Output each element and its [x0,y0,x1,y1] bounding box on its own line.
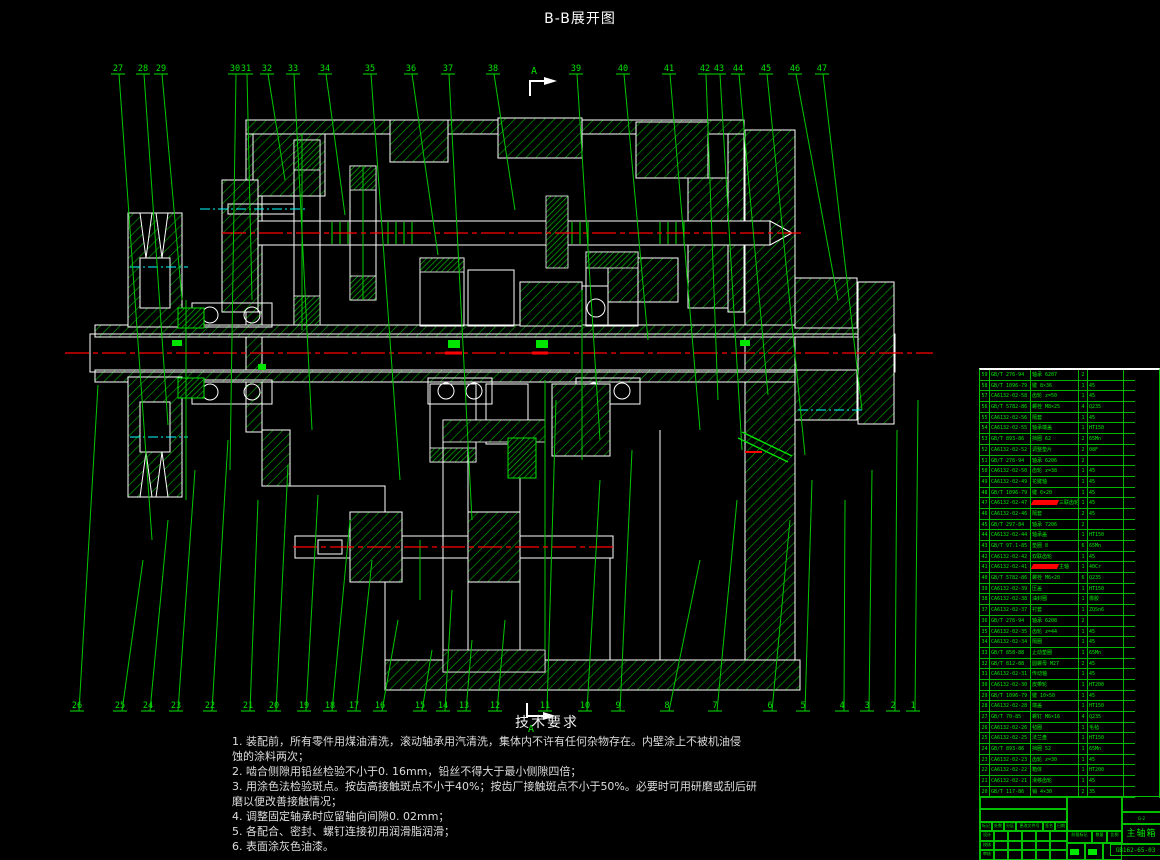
bom-cell: 齿轮 z=30 [1031,755,1079,766]
bom-cell: 65Mn [1088,434,1124,445]
bom-cell: 4 [1079,402,1088,413]
callout-number-26: 26 [72,701,82,711]
bom-cell: CA6132-02-39 [990,584,1031,595]
bom-cell: CA6132-02-22 [990,765,1031,776]
callout-number-41: 41 [664,64,674,74]
bom-cell: 57 [980,391,990,402]
red-highlight-bar [1031,500,1059,505]
bom-cell: CA6132-02-56 [990,413,1031,424]
change-record-label: 更改文件号 [1016,822,1043,831]
bom-cell: 08F [1088,445,1124,456]
bom-cell: 48 [980,488,990,499]
bom-cell: GB/T 70-85 [990,712,1031,723]
bom-cell: 1 [1079,594,1088,605]
bom-cell: 2 [1079,456,1088,467]
bom-cell: 花键轴 [1031,477,1079,488]
bom-cell: 6 [1079,573,1088,584]
bom-cell [1124,669,1135,680]
bom-cell: CA6132-02-37 [990,605,1031,616]
callout-number-37: 37 [443,64,453,74]
bom-cell: GB/T 1096-79 [990,381,1031,392]
bom-cell: 38 [980,594,990,605]
bom-cell: 45 [1088,413,1124,424]
bom-row-41: 41CA6132-02-41主轴140Cr [980,562,1159,573]
callout-number-21: 21 [243,701,253,711]
bom-cell [1124,691,1135,702]
callout-number-36: 36 [406,64,416,74]
bom-cell [1124,477,1135,488]
bom-cell: 1 [1079,701,1088,712]
bom-cell: 45 [1088,776,1124,787]
bom-cell: 毡圈 [1031,723,1079,734]
bom-cell: 1 [1079,648,1088,659]
tech-requirement-line-1: 1. 装配前，所有零件用煤油清洗，滚动轴承用汽清洗，集体内不许有任何杂物存在。内… [232,734,752,749]
bom-row-50: 50CA6132-02-50齿轮 z=38145 [980,466,1159,477]
bom-cell: 30 [980,680,990,691]
bom-cell: GB/T 812-88 [990,659,1031,670]
bom-cell: 1 [1079,391,1088,402]
bom-cell: 21 [980,776,990,787]
callout-number-32: 32 [262,64,272,74]
bom-cell [1124,680,1135,691]
bom-cell: 45 [1088,669,1124,680]
bom-cell: GB/T 893-86 [990,434,1031,445]
bom-cell: 36 [980,616,990,627]
bom-cell [1124,605,1135,616]
bom-cell [1124,659,1135,670]
callout-number-34: 34 [320,64,330,74]
bom-cell: 1 [1079,530,1088,541]
bom-row-32: 32GB/T 812-88圆螺母 M27245 [980,659,1159,670]
product-name: 主轴箱 [1122,824,1160,844]
bom-cell: Q235 [1088,573,1124,584]
bom-cell: 51 [980,456,990,467]
bom-cell: 1 [1079,498,1088,509]
bom-cell [1124,541,1135,552]
bom-cell: CA6132-02-44 [990,530,1031,541]
bom-cell: 39 [980,584,990,595]
bom-cell [1124,381,1135,392]
bom-cell: 35 [980,627,990,638]
callout-number-28: 28 [138,64,148,74]
red-highlight-bar [1031,564,1059,569]
bom-row-21: 21CA6132-02-21滑移齿轮145 [980,776,1159,787]
title-block: 标记处数分区更改文件号签名日期 设计校核审核 阶段标记数量比例 G‑2 主轴箱 … [979,796,1160,860]
sign-cell [1022,841,1036,851]
bom-row-36: 36GB/T 276-94轴承 62082 [980,616,1159,627]
bom-cell: 45 [1088,637,1124,648]
bom-cell: 44 [980,530,990,541]
bom-cell: 40 [980,573,990,584]
technical-requirements: 技术要求 1. 装配前，所有零件用煤油清洗，滚动轴承用汽清洗，集体内不许有任何杂… [232,712,752,854]
section-marker-a-top: A [530,66,557,96]
bom-cell: 止动垫圈 [1031,648,1079,659]
bom-cell: 1 [1079,423,1088,434]
bom-cell: 1 [1079,765,1088,776]
bom-cell: 1 [1079,477,1088,488]
tech-requirements-heading: 技术要求 [412,712,682,732]
sign-cell: 校核 [980,841,994,851]
bom-cell: 1 [1079,637,1088,648]
bom-cell: 隔圈 [1031,637,1079,648]
change-record-label: 处数 [992,822,1004,831]
bom-cell: 圆螺母 M27 [1031,659,1079,670]
bom-cell: 1 [1079,381,1088,392]
bom-cell: 34 [980,637,990,648]
bom-cell: CA6132-02-38 [990,594,1031,605]
bom-cell: 65Mn [1088,744,1124,755]
bom-cell: 轴承 6207 [1031,370,1079,381]
bom-cell: 4 [1079,712,1088,723]
callout-number-39: 39 [571,64,581,74]
bom-cell: 2 [1079,520,1088,531]
callout-number-10: 10 [580,701,590,711]
bom-row-31: 31CA6132-02-31传动轴145 [980,669,1159,680]
bom-row-44: 44CA6132-02-44轴承盖1HT150 [980,530,1159,541]
bom-cell [1124,391,1135,402]
bom-cell [1124,648,1135,659]
bom-cell: 45 [1088,509,1124,520]
bom-cell: GB/T 5782-86 [990,573,1031,584]
callout-number-29: 29 [156,64,166,74]
bom-cell [1124,584,1135,595]
bom-cell: 42 [980,552,990,563]
bom-cell: CA6132-02-50 [990,466,1031,477]
bom-cell [1124,627,1135,638]
view-title: B-B展开图 [0,8,1160,28]
bom-cell: 33 [980,648,990,659]
bom-cell: 45 [1088,498,1124,509]
callout-number-23: 23 [171,701,181,711]
bom-row-53: 53GB/T 893-86挡圈 62265Mn [980,434,1159,445]
bom-cell: 45 [1088,755,1124,766]
callout-number-45: 45 [761,64,771,74]
bom-cell: 压盖 [1031,584,1079,595]
sign-cell [1050,841,1067,851]
sign-cell [1008,841,1022,851]
sign-cell [1036,850,1050,860]
bom-cell: 1 [1079,488,1088,499]
bom-cell: 轴承 6206 [1031,456,1079,467]
bom-cell [1088,520,1124,531]
bom-row-26: 26CA6132-02-26毡圈1毛毡 [980,723,1159,734]
bom-cell [1124,733,1135,744]
bom-row-42: 42CA6132-02-42双联齿轮145 [980,552,1159,563]
bom-row-59: 59GB/T 276-94轴承 62072 [980,370,1159,381]
bom-cell: Q235 [1088,712,1124,723]
callout-number-40: 40 [618,64,628,74]
bom-cell [1124,552,1135,563]
bom-cell [1088,370,1124,381]
bom-row-43: 43GB/T 97.1-85垫圈 8665Mn [980,541,1159,552]
bom-row-47: 47CA6132-02-47三联齿轮145 [980,498,1159,509]
bom-cell: 螺钉 M6×16 [1031,712,1079,723]
bom-cell: GB/T 893-86 [990,744,1031,755]
bom-row-40: 40GB/T 5782-86螺栓 M6×206Q235 [980,573,1159,584]
bom-cell: 轴承盖 [1031,530,1079,541]
change-record-label: 标记 [980,822,992,831]
bom-cell: 2 [1079,434,1088,445]
bom-cell: 1 [1079,627,1088,638]
bom-cell: 58 [980,381,990,392]
callout-number-19: 19 [299,701,309,711]
sign-cell [1050,850,1067,860]
bom-cell: 隔套 [1031,509,1079,520]
bom-row-52: 52CA6132-02-52调整垫片208F [980,445,1159,456]
bom-row-58: 58GB/T 1096-79键 8×36145 [980,381,1159,392]
bom-cell [1124,466,1135,477]
bom-cell: 1 [1079,466,1088,477]
bom-cell: 油封圈 [1031,594,1079,605]
bom-cell: 45 [1088,477,1124,488]
bom-cell: CA6132-02-35 [990,627,1031,638]
bom-cell: 53 [980,434,990,445]
bom-cell [1124,712,1135,723]
bom-row-45: 45GB/T 297-84轴承 72062 [980,520,1159,531]
bom-cell [1124,530,1135,541]
sign-cell [994,850,1008,860]
bom-cell: 1 [1079,723,1088,734]
bom-cell: 轴承端盖 [1031,423,1079,434]
sign-cell [994,841,1008,851]
callout-number-31: 31 [241,64,251,74]
callout-number-43: 43 [714,64,724,74]
parts-list-table[interactable]: 59GB/T 276-94轴承 6207258GB/T 1096-79键 8×3… [979,368,1160,798]
bom-cell: 2 [1079,616,1088,627]
callout-number-18: 18 [325,701,335,711]
bom-cell: 调整垫片 [1031,445,1079,456]
bom-row-30: 30CA6132-02-30皮带轮1HT200 [980,680,1159,691]
change-record-label: 签名 [1043,822,1055,831]
bom-cell: CA6132-02-23 [990,755,1031,766]
bom-row-55: 55CA6132-02-56隔套145 [980,413,1159,424]
stage-label: 比例 [1107,831,1122,843]
bom-cell: HT150 [1088,733,1124,744]
bom-cell [1124,370,1135,381]
callout-number-14: 14 [438,701,448,711]
bom-cell: 1 [1079,733,1088,744]
bom-cell: 45 [1088,659,1124,670]
sign-cell [1008,831,1022,841]
bom-cell: 衬套 [1031,605,1079,616]
bom-cell: 挡圈 62 [1031,434,1079,445]
bom-cell: 1 [1079,584,1088,595]
sign-cell [1050,831,1067,841]
bom-cell: 1 [1079,413,1088,424]
bom-row-25: 25CA6132-02-25法兰盘1HT150 [980,733,1159,744]
bom-cell: CA6132-02-26 [990,723,1031,734]
bom-cell: 29 [980,691,990,702]
bom-cell [1124,701,1135,712]
bom-cell: 27 [980,712,990,723]
bom-cell [1124,509,1135,520]
bom-cell: GB/T 1096-79 [990,691,1031,702]
callout-number-27: 27 [113,64,123,74]
bom-cell: GB/T 276-94 [990,370,1031,381]
bom-cell [1124,723,1135,734]
bom-cell: 齿轮 z=38 [1031,466,1079,477]
bom-cell: 43 [980,541,990,552]
bom-cell: CA6132-02-47 [990,498,1031,509]
bom-cell [1124,776,1135,787]
bom-cell: 45 [1088,488,1124,499]
bom-cell: 键 6×20 [1031,488,1079,499]
bom-cell: 37 [980,605,990,616]
bom-cell: 端盖 [1031,701,1079,712]
bom-row-27: 27GB/T 70-85螺钉 M6×164Q235 [980,712,1159,723]
svg-text:A: A [531,66,537,77]
bom-row-57: 57CA6132-02-58齿轮 z=50145 [980,391,1159,402]
bom-cell [1124,562,1135,573]
bom-cell: 54 [980,423,990,434]
sign-cell [1022,850,1036,860]
bom-cell: 45 [1088,391,1124,402]
bom-row-22: 22CA6132-02-22箱体1HT200 [980,765,1159,776]
bom-row-33: 33GB/T 858-88止动垫圈165Mn [980,648,1159,659]
bom-row-28: 28CA6132-02-28端盖1HT150 [980,701,1159,712]
bom-cell: 40Cr [1088,562,1124,573]
bom-cell: HT150 [1088,584,1124,595]
bom-cell: 齿轮 z=50 [1031,391,1079,402]
bom-cell: 毛毡 [1088,723,1124,734]
bom-cell: 55 [980,413,990,424]
bom-cell: 滑移齿轮 [1031,776,1079,787]
bom-cell: 挡圈 52 [1031,744,1079,755]
callout-number-44: 44 [733,64,743,74]
bom-row-35: 35CA6132-02-35齿轮 z=44145 [980,627,1159,638]
bom-cell: HT150 [1088,701,1124,712]
tech-requirement-line-2: 蚀的涂料两次； [232,749,752,764]
tech-requirement-line-7: 5. 各配合、密封、螺钉连接初用润滑脂润滑； [232,824,752,839]
bom-cell [1124,765,1135,776]
bom-cell: HT200 [1088,680,1124,691]
bom-cell: HT150 [1088,530,1124,541]
callout-number-38: 38 [488,64,498,74]
bom-cell: CA6132-02-30 [990,680,1031,691]
bom-cell [1124,637,1135,648]
bom-cell: CA6132-02-21 [990,776,1031,787]
bom-row-24: 24GB/T 893-86挡圈 52165Mn [980,744,1159,755]
bom-row-46: 46CA6132-02-46隔套245 [980,509,1159,520]
bom-row-48: 48GB/T 1096-79键 6×20145 [980,488,1159,499]
callout-number-13: 13 [459,701,469,711]
bom-row-23: 23CA6132-02-23齿轮 z=30145 [980,755,1159,766]
bom-cell: 1 [1079,562,1088,573]
bom-cell: 1 [1079,680,1088,691]
bom-row-51: 51GB/T 276-94轴承 62062 [980,456,1159,467]
bom-cell: 2 [1079,659,1088,670]
callout-number-12: 12 [490,701,500,711]
tech-requirement-line-5: 磨以便改善接触情况； [232,794,752,809]
bom-cell: 垫圈 8 [1031,541,1079,552]
bom-cell: 传动轴 [1031,669,1079,680]
callout-number-47: 47 [817,64,827,74]
stage-mark-cell: G‑2 [1122,812,1160,824]
tech-requirement-line-6: 4. 调整固定轴承时应留轴向间隙0. 02mm； [232,809,752,824]
bom-cell: 法兰盘 [1031,733,1079,744]
callout-number-42: 42 [700,64,710,74]
bom-cell: 皮带轮 [1031,680,1079,691]
bom-row-39: 39CA6132-02-39压盖1HT150 [980,584,1159,595]
sign-cell [1036,841,1050,851]
bom-cell: 轴承 7206 [1031,520,1079,531]
stage-label: 数量 [1092,831,1107,843]
callout-number-24: 24 [143,701,153,711]
bom-cell: GB/T 97.1-85 [990,541,1031,552]
cad-canvas[interactable]: A A 272829303132333435363738394041424344… [0,0,1160,860]
bom-cell: 2 [1079,370,1088,381]
bom-cell: CA6132-02-31 [990,669,1031,680]
bom-cell: ZQSn6 [1088,605,1124,616]
bom-cell: 主轴 [1031,562,1079,573]
bom-cell [1124,445,1135,456]
sign-cell [1022,831,1036,841]
bom-cell: 45 [1088,627,1124,638]
bom-cell: GB/T 5782-86 [990,402,1031,413]
bom-cell: 65Mn [1088,648,1124,659]
callout-number-33: 33 [288,64,298,74]
bom-cell: Q235 [1088,402,1124,413]
bom-cell: 1 [1079,691,1088,702]
bom-row-56: 56GB/T 5782-86螺栓 M8×254Q235 [980,402,1159,413]
bom-cell: 24 [980,744,990,755]
bom-cell: 59 [980,370,990,381]
bom-cell: CA6132-02-34 [990,637,1031,648]
bom-cell: 齿轮 z=44 [1031,627,1079,638]
callout-number-20: 20 [269,701,279,711]
bom-cell: 32 [980,659,990,670]
bom-cell [1124,594,1135,605]
bom-cell: 56 [980,402,990,413]
bom-cell [1124,488,1135,499]
bom-cell [1124,423,1135,434]
tech-requirement-line-8: 6. 表面涂灰色油漆。 [232,839,752,854]
bom-cell: 41 [980,562,990,573]
bom-cell: 轴承 6208 [1031,616,1079,627]
bom-cell: 橡胶 [1088,594,1124,605]
bom-cell: GB/T 1096-79 [990,488,1031,499]
callout-number-22: 22 [205,701,215,711]
bom-cell: 1 [1079,776,1088,787]
sign-cell [994,831,1008,841]
bom-cell: 45 [1088,466,1124,477]
bom-cell: 31 [980,669,990,680]
bom-cell: 1 [1079,669,1088,680]
bom-cell: CA6132-02-49 [990,477,1031,488]
bom-cell [1124,755,1135,766]
bom-cell: 22 [980,765,990,776]
callout-number-8: 8 [664,701,669,711]
bom-cell: 23 [980,755,990,766]
bom-cell: CA6132-02-25 [990,733,1031,744]
bom-cell: 2 [1079,445,1088,456]
bom-cell: 隔套 [1031,413,1079,424]
bom-cell: HT150 [1088,423,1124,434]
bom-cell: HT200 [1088,765,1124,776]
bom-cell: CA6132-02-28 [990,701,1031,712]
bom-cell [1124,413,1135,424]
tech-requirement-line-3: 2. 啮合侧隙用铅丝检验不小于0. 16mm，铅丝不得大于最小侧隙四倍； [232,764,752,779]
callout-number-17: 17 [349,701,359,711]
sign-cell: 审核 [980,850,994,860]
bom-cell: 螺栓 M6×20 [1031,573,1079,584]
bom-cell: 箱体 [1031,765,1079,776]
bom-cell [1124,616,1135,627]
bom-cell: GB/T 858-88 [990,648,1031,659]
sign-cell [1008,850,1022,860]
bom-cell: GB/T 297-84 [990,520,1031,531]
bom-row-49: 49CA6132-02-49花键轴145 [980,477,1159,488]
